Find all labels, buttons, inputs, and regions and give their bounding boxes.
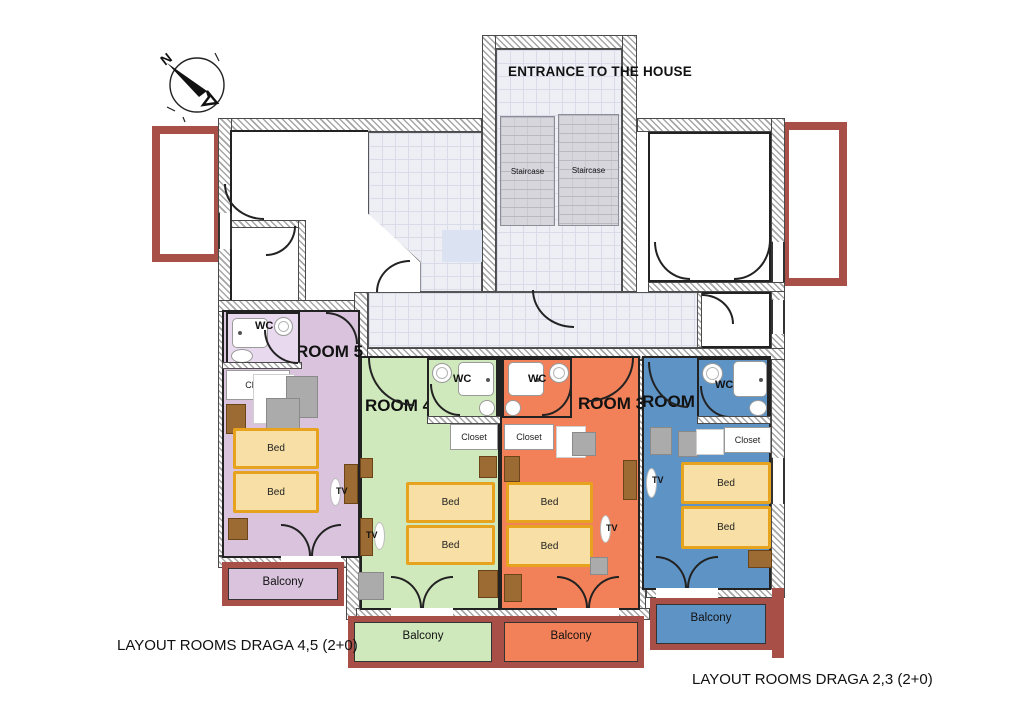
tv-label: TV [366, 530, 378, 540]
room-3-wc: WC [502, 358, 572, 418]
compass-rose: N [155, 45, 235, 123]
wall [218, 118, 482, 132]
sink-icon [479, 400, 495, 416]
door-threshold [656, 588, 718, 598]
chair [572, 432, 596, 456]
floor-plan: N ENTRANCE TO THE HOUSE Staircase Stairc… [0, 0, 1024, 723]
window [771, 300, 785, 334]
balcony-label: Balcony [403, 630, 444, 662]
bed-label: Bed [541, 497, 559, 508]
nightstand [228, 518, 248, 540]
tv-cabinet [344, 464, 358, 504]
balcony-room-5: Balcony [222, 562, 344, 606]
dresser [478, 570, 498, 598]
balcony-label: Balcony [263, 576, 304, 600]
room-3-closet: Closet [504, 424, 554, 450]
dresser [504, 574, 522, 602]
tv-label: TV [336, 486, 348, 496]
wall [637, 118, 785, 132]
room-2-wc: WC [697, 358, 769, 418]
bed: Bed [406, 525, 495, 565]
terrace-right-railing [781, 122, 847, 286]
toilet-icon [549, 363, 569, 383]
bed: Bed [233, 471, 319, 513]
door-arc [542, 384, 572, 416]
railing-strip [772, 588, 784, 658]
tv-cabinet [623, 460, 637, 500]
wall [482, 35, 637, 49]
dresser [360, 458, 373, 478]
window [218, 213, 232, 249]
dresser [479, 456, 497, 478]
sink-icon [505, 400, 521, 416]
balcony-room-2: Balcony [650, 598, 772, 650]
door-arc [700, 386, 730, 418]
bed-label: Bed [442, 497, 460, 508]
terrace-left-railing [152, 126, 222, 262]
bed-label: Bed [442, 540, 460, 551]
bed: Bed [506, 525, 593, 567]
balcony-room-4: Balcony [348, 616, 498, 668]
bed: Bed [406, 482, 495, 523]
window [771, 242, 785, 282]
sink-icon [749, 400, 767, 416]
closet-label: Closet [461, 432, 487, 442]
wall [648, 282, 785, 292]
bed-label: Bed [267, 443, 285, 454]
bed-label: Bed [717, 522, 735, 533]
room-4-wc: WC [427, 358, 498, 418]
staircase-right: Staircase [558, 114, 619, 226]
bed-label: Bed [717, 478, 735, 489]
chair [358, 572, 384, 600]
staircase-label: Staircase [511, 167, 544, 176]
staircase-label: Staircase [572, 166, 605, 175]
dresser [748, 550, 772, 568]
dresser [504, 456, 520, 482]
closet-label: Closet [735, 435, 761, 445]
desk [696, 429, 724, 455]
wall [697, 416, 771, 424]
chair [650, 427, 672, 455]
shower-icon [733, 361, 767, 397]
floor-mat [442, 230, 482, 262]
bed: Bed [233, 428, 319, 469]
caption-left: LAYOUT ROOMS DRAGA 4,5 (2+0) [117, 637, 358, 654]
toilet-icon [432, 363, 452, 383]
wall [298, 220, 306, 304]
staircase-left: Staircase [500, 116, 555, 226]
room-5-label: ROOM 5 [296, 342, 363, 362]
bed: Bed [506, 482, 593, 523]
bed: Bed [681, 506, 771, 549]
tv-label: TV [652, 475, 664, 485]
bed-label: Bed [541, 541, 559, 552]
balcony-label: Balcony [551, 630, 592, 662]
chair [678, 431, 698, 457]
entrance-title: ENTRANCE TO THE HOUSE [508, 64, 692, 79]
balcony-label: Balcony [691, 612, 732, 644]
caption-right: LAYOUT ROOMS DRAGA 2,3 (2+0) [692, 671, 933, 688]
closet-label: Closet [516, 432, 542, 442]
wall [482, 35, 496, 292]
bed-label: Bed [267, 487, 285, 498]
bed: Bed [681, 462, 771, 504]
tv-label: TV [606, 523, 618, 533]
room-4-closet: Closet [450, 424, 498, 450]
room-2-closet: Closet [724, 427, 771, 453]
sink-icon [231, 349, 253, 363]
window [771, 458, 785, 504]
chair [590, 557, 608, 575]
door-arc [430, 384, 460, 416]
balcony-room-3: Balcony [498, 616, 644, 668]
